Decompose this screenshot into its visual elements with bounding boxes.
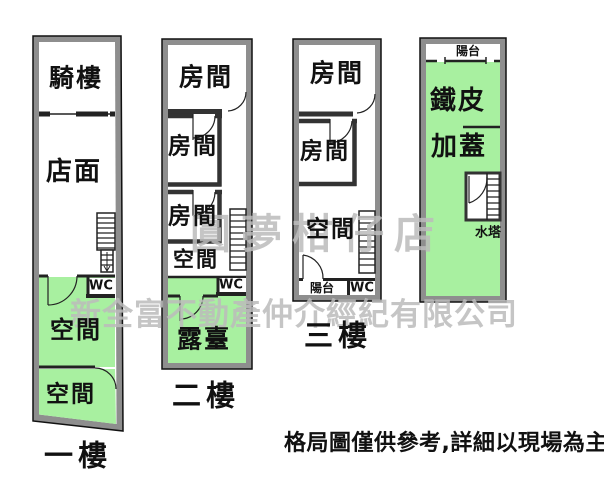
floor1-storefront-label: 店面: [46, 159, 102, 185]
floor3-balcony-label: 陽台: [310, 282, 334, 294]
floor2-room-top-label: 房間: [179, 65, 233, 90]
floor1-name: 一樓: [44, 442, 112, 471]
rooftop-name-line1: 鐵皮: [430, 88, 486, 114]
floor2-name: 二樓: [172, 382, 240, 411]
plan-floor1: [33, 36, 123, 431]
rooftop-water-tank-label: 水塔: [475, 227, 501, 240]
floor3-room-top-label: 房間: [310, 61, 364, 86]
floor2-room-low-label: 房間: [168, 206, 218, 229]
rooftop-balcony-label: 陽台: [456, 45, 480, 57]
floor3-wc-label: WC: [350, 282, 374, 295]
floor2-space-label: 空間: [173, 250, 219, 271]
rooftop-name-line2: 加蓋: [431, 134, 487, 160]
floor1-space-upper-label: 空間: [50, 318, 102, 342]
floor2-terrace-label: 露臺: [177, 327, 231, 352]
floor3-name: 三樓: [304, 322, 372, 351]
floor3-space-label: 空間: [306, 219, 356, 242]
plan-rooftop: [420, 38, 506, 302]
floor1-space-lower-label: 空間: [46, 384, 96, 407]
floor3-room-mid-label: 房間: [300, 141, 350, 164]
floor2-room-mid-label: 房間: [168, 136, 218, 159]
rooftop-stairwell: [466, 173, 500, 220]
watermark-company-name: 新全富不動產仲介經紀有限公司: [70, 300, 518, 331]
floor2-wc-label: WC: [219, 279, 243, 292]
floorplan-page: 圓夢柑仔店 新全富不動產仲介經紀有限公司 騎樓 店面 空間 空間 WC 一樓 房…: [0, 0, 604, 480]
floor1-wc-label: WC: [89, 280, 113, 293]
disclaimer-text: 格局圖僅供參考,詳細以現場為主: [284, 425, 604, 457]
floor1-arcade-label: 騎樓: [49, 66, 103, 91]
